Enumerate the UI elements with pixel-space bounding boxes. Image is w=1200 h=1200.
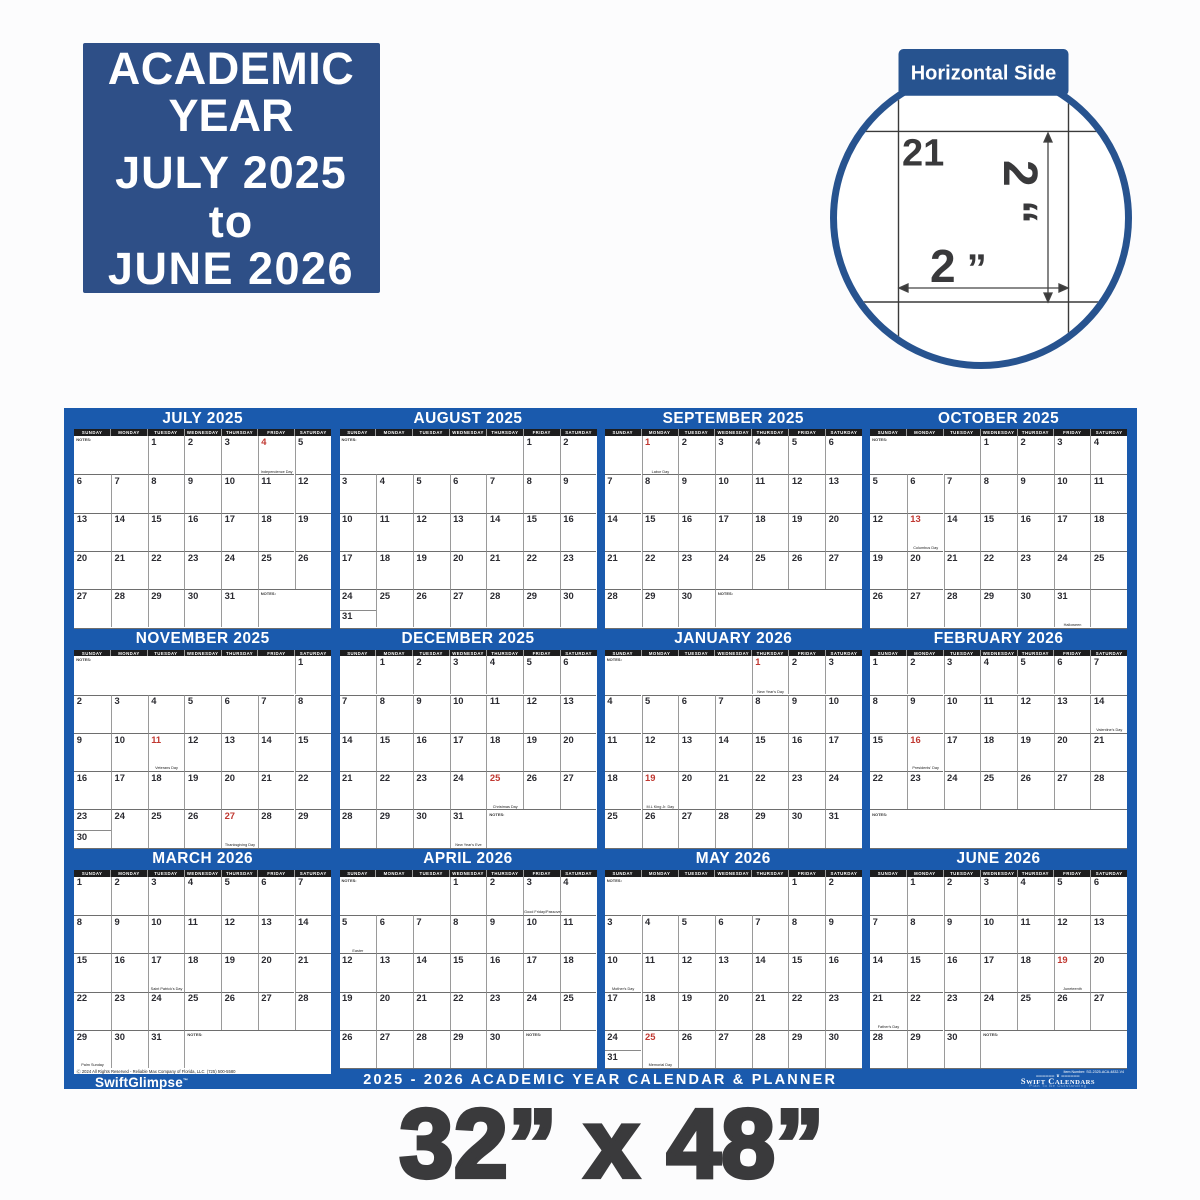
svg-text:Horizontal Side: Horizontal Side	[911, 63, 1057, 85]
svg-text:21: 21	[902, 133, 944, 175]
svg-text:2 ”: 2 ”	[930, 240, 987, 292]
svg-text:2 “: 2 “	[993, 160, 1046, 224]
